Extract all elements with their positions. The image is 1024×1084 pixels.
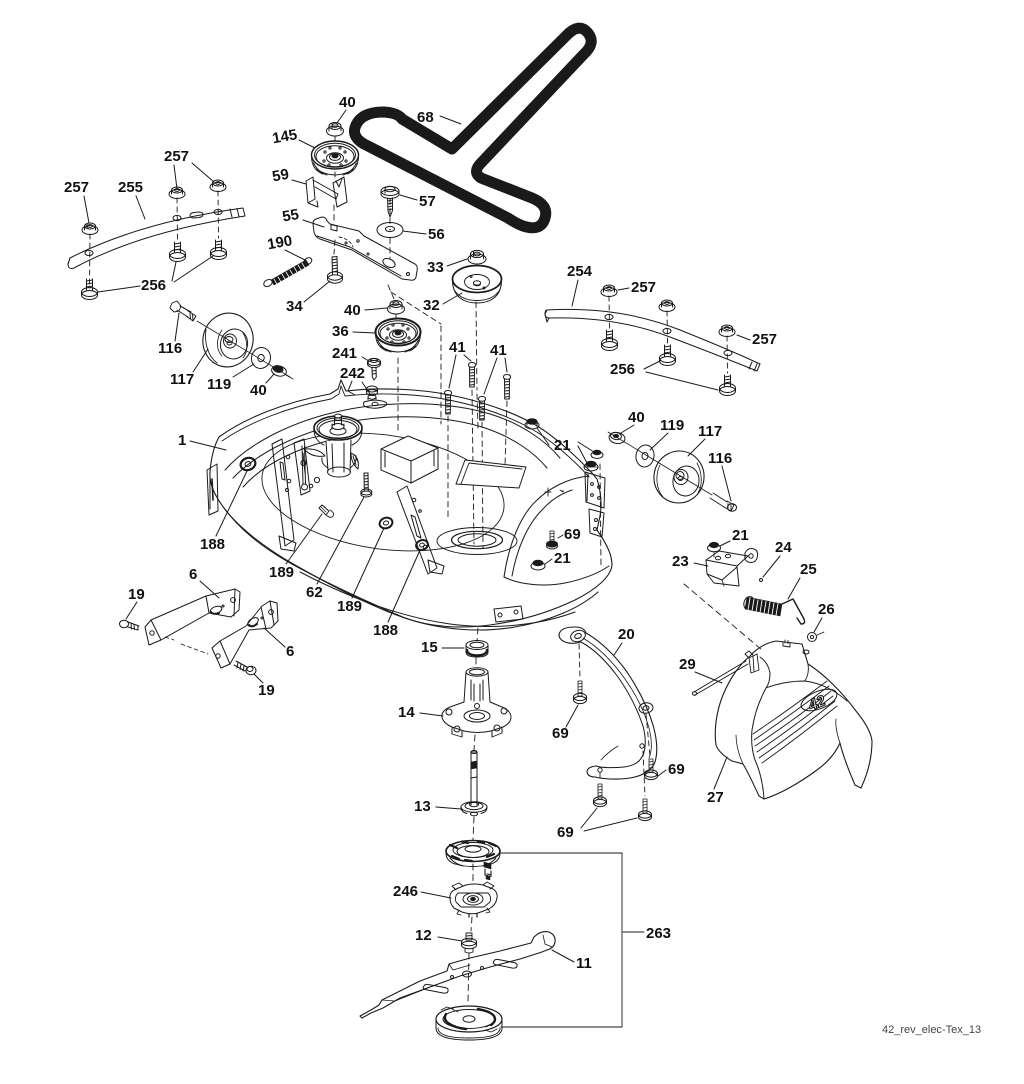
svg-text:257: 257: [64, 179, 89, 196]
svg-text:59: 59: [271, 166, 290, 186]
svg-text:257: 257: [631, 279, 656, 296]
svg-text:119: 119: [660, 417, 684, 434]
svg-text:14: 14: [398, 704, 415, 721]
svg-text:36: 36: [332, 323, 349, 340]
svg-text:32: 32: [423, 297, 440, 314]
svg-text:55: 55: [281, 206, 300, 226]
svg-text:56: 56: [428, 226, 445, 243]
svg-text:188: 188: [200, 536, 225, 553]
svg-text:117: 117: [698, 423, 722, 440]
svg-text:241: 241: [332, 345, 357, 362]
svg-text:40: 40: [628, 409, 645, 426]
svg-text:116: 116: [708, 450, 732, 467]
svg-text:20: 20: [618, 626, 635, 643]
svg-text:62: 62: [306, 584, 323, 601]
svg-text:256: 256: [610, 361, 635, 378]
svg-text:42_rev_elec-Tex_13: 42_rev_elec-Tex_13: [882, 1024, 981, 1036]
svg-text:117: 117: [170, 371, 194, 388]
svg-text:257: 257: [164, 148, 189, 165]
svg-text:69: 69: [668, 761, 685, 778]
svg-text:69: 69: [552, 725, 569, 742]
svg-text:69: 69: [557, 824, 574, 841]
svg-text:19: 19: [128, 586, 145, 603]
svg-text:34: 34: [286, 298, 303, 315]
svg-text:242: 242: [340, 365, 365, 382]
svg-text:40: 40: [339, 94, 356, 111]
svg-text:12: 12: [415, 927, 432, 944]
svg-text:41: 41: [490, 342, 507, 359]
svg-text:27: 27: [707, 789, 724, 806]
svg-text:6: 6: [189, 566, 197, 583]
svg-text:13: 13: [414, 798, 431, 815]
svg-text:40: 40: [344, 302, 361, 319]
svg-text:6: 6: [286, 643, 294, 660]
svg-text:23: 23: [672, 553, 689, 570]
svg-text:189: 189: [337, 598, 362, 615]
svg-text:25: 25: [800, 561, 817, 578]
svg-text:24: 24: [775, 539, 792, 556]
svg-text:256: 256: [141, 277, 166, 294]
svg-text:257: 257: [752, 331, 777, 348]
svg-text:254: 254: [567, 263, 593, 280]
svg-text:246: 246: [393, 883, 418, 900]
svg-text:116: 116: [158, 340, 182, 357]
svg-text:21: 21: [554, 437, 571, 454]
svg-text:19: 19: [258, 682, 275, 699]
svg-text:29: 29: [679, 656, 696, 673]
svg-text:26: 26: [818, 601, 835, 618]
svg-text:41: 41: [449, 339, 466, 356]
svg-text:188: 188: [373, 622, 398, 639]
svg-text:1: 1: [178, 432, 186, 449]
svg-text:69: 69: [564, 526, 581, 543]
svg-text:189: 189: [269, 564, 294, 581]
svg-text:15: 15: [421, 639, 438, 656]
svg-text:263: 263: [646, 925, 671, 942]
svg-text:21: 21: [554, 550, 571, 567]
svg-text:68: 68: [417, 109, 434, 126]
svg-text:11: 11: [576, 955, 592, 972]
svg-text:57: 57: [419, 193, 436, 210]
svg-text:119: 119: [207, 376, 231, 393]
svg-text:255: 255: [118, 179, 143, 196]
svg-text:33: 33: [427, 259, 444, 276]
svg-text:40: 40: [250, 382, 267, 399]
svg-text:21: 21: [732, 527, 749, 544]
